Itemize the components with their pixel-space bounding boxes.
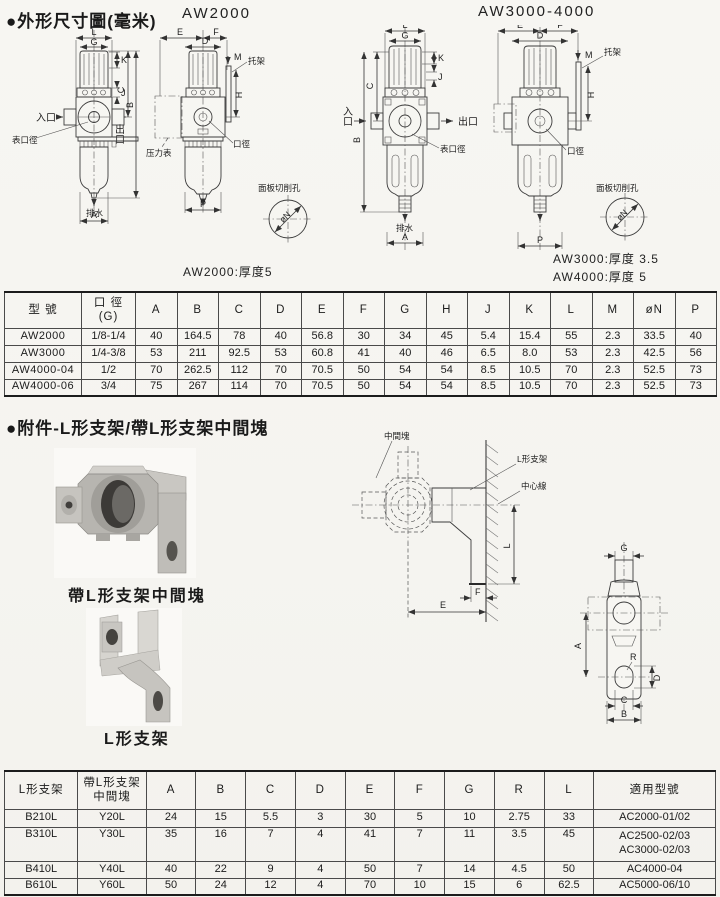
dim-L: L — [91, 27, 96, 37]
cell: 54 — [426, 379, 468, 396]
cell: 30 — [343, 328, 385, 345]
port-label: 口徑 — [233, 139, 251, 149]
cell: 45 — [544, 827, 594, 861]
cell: 70.5 — [302, 379, 344, 396]
cell: Y30L — [78, 827, 146, 861]
cell: AC2000-01/02 — [594, 809, 716, 827]
intermediate-block-label: 中間塊 — [384, 431, 410, 441]
cell: 9 — [246, 861, 296, 878]
cell: 16 — [196, 827, 246, 861]
cell: 40 — [675, 328, 717, 345]
dimension-table: 型 號 口 徑(G) A B C D E F G H J K L M øN P — [4, 291, 717, 397]
gauge-port-label: 表口徑 — [12, 135, 38, 145]
phi-n-label: øN — [614, 207, 629, 222]
cell: 75 — [136, 379, 178, 396]
cell: B310L — [5, 827, 78, 861]
cell: AW4000-06 — [5, 379, 82, 396]
dim-L: L — [402, 25, 407, 30]
cell: 6 — [494, 878, 544, 895]
aw3000-side-view: E F D M 托架 H — [494, 25, 622, 252]
cell: 92.5 — [219, 345, 261, 362]
t1-h-C: C — [219, 292, 261, 328]
aw3000-front-view: L G K J — [341, 25, 479, 250]
t1-h-E: E — [302, 292, 344, 328]
dim-E: E — [517, 25, 523, 30]
t2-h-C: C — [246, 771, 296, 809]
aw2000-title: AW2000 — [182, 5, 251, 22]
dim-F: F — [213, 27, 219, 37]
cell: 40 — [146, 861, 196, 878]
cell: 2.3 — [592, 379, 634, 396]
cell: 70.5 — [302, 362, 344, 379]
cell: 1/2 — [82, 362, 136, 379]
t2-h-R: R — [494, 771, 544, 809]
photo-caption-bracket-with-block: 帶L形支架中間塊 — [68, 582, 206, 606]
dim-K: K — [121, 55, 127, 65]
cell: 33 — [544, 809, 594, 827]
inlet-label: 入口 — [341, 106, 353, 126]
cell: Y40L — [78, 861, 146, 878]
cell: 45 — [426, 328, 468, 345]
dim-M: M — [585, 50, 593, 60]
cell: AW2000 — [5, 328, 82, 345]
cell: B410L — [5, 861, 78, 878]
dim-F: F — [557, 25, 563, 30]
dim-H: H — [234, 92, 244, 99]
dim-A: A — [91, 210, 97, 220]
pressure-gauge-label: 压力表 — [146, 148, 172, 158]
gauge-port-label: 表口徑 — [440, 144, 466, 154]
t1-h-M: M — [592, 292, 634, 328]
cell: 54 — [385, 362, 427, 379]
dim-C: C — [365, 82, 375, 89]
cell: 30 — [345, 809, 395, 827]
cell: 73 — [675, 362, 717, 379]
table-row: AW4000-04 1/2 70 262.5 112 70 70.5 50 54… — [5, 362, 717, 379]
aw2000-thickness-note: AW2000:厚度5 — [183, 263, 273, 280]
cell: 4 — [295, 861, 345, 878]
t2-h-F: F — [395, 771, 445, 809]
cell: 50 — [345, 861, 395, 878]
panel-cutout-label: 面板切削孔 — [258, 183, 301, 193]
cell: 7 — [395, 861, 445, 878]
cell: 10.5 — [509, 362, 551, 379]
cell: 54 — [385, 379, 427, 396]
t1-h-J: J — [468, 292, 510, 328]
aw3000-4000-title: AW3000-4000 — [478, 3, 595, 20]
cell: 50 — [544, 861, 594, 878]
table-header-row: 型 號 口 徑(G) A B C D E F G H J K L M øN P — [5, 292, 717, 328]
cell: 41 — [343, 345, 385, 362]
panel-cutout-aw3000: 面板切削孔 øN — [596, 183, 650, 241]
cell: 211 — [177, 345, 219, 362]
dim-P: P — [200, 199, 206, 209]
dim-E: E — [440, 600, 446, 610]
cell: 267 — [177, 379, 219, 396]
dim-J: J — [438, 72, 443, 82]
cell: 8.0 — [509, 345, 551, 362]
cell: 2.3 — [592, 345, 634, 362]
cell: 73 — [675, 379, 717, 396]
cell: 262.5 — [177, 362, 219, 379]
cell: 70 — [260, 362, 302, 379]
cell: B210L — [5, 809, 78, 827]
t1-h-A: A — [136, 292, 178, 328]
cell: 40 — [136, 328, 178, 345]
table-row: B310L Y30L 35 16 7 4 41 7 11 3.5 45 AC25… — [5, 827, 716, 861]
t2-h-models: 適用型號 — [594, 771, 716, 809]
cell: 7 — [395, 827, 445, 861]
bracket-installation-drawing: 中間塊 — [352, 431, 548, 622]
t1-h-L: L — [551, 292, 593, 328]
cell: 34 — [385, 328, 427, 345]
cell: 24 — [196, 878, 246, 895]
dim-F: F — [475, 587, 481, 597]
table-row: AW4000-06 3/4 75 267 114 70 70.5 50 54 5… — [5, 379, 717, 396]
cell: 15 — [196, 809, 246, 827]
t2-h-B: B — [196, 771, 246, 809]
dim-L: L — [502, 543, 512, 548]
t1-h-B: B — [177, 292, 219, 328]
dim-D: D — [202, 36, 209, 46]
cell: 10 — [445, 809, 495, 827]
dim-G: G — [620, 543, 627, 553]
dim-R: R — [630, 652, 637, 662]
dim-C: C — [116, 86, 126, 93]
cell: Y60L — [78, 878, 146, 895]
cell: 54 — [426, 362, 468, 379]
t1-h-D: D — [260, 292, 302, 328]
outlet-label: 出口 — [458, 115, 478, 128]
t1-h-G: G — [385, 292, 427, 328]
dim-B: B — [352, 137, 362, 143]
cell: AC5000-06/10 — [594, 878, 716, 895]
photo-l-bracket — [86, 608, 182, 726]
cell: 12 — [246, 878, 296, 895]
cell: 70 — [136, 362, 178, 379]
table-row: AW2000 1/8-1/4 40 164.5 78 40 56.8 30 34… — [5, 328, 717, 345]
cell: 70 — [551, 379, 593, 396]
t1-h-F: F — [343, 292, 385, 328]
cell: 11 — [445, 827, 495, 861]
cell: 42.5 — [634, 345, 676, 362]
panel-cutout-aw2000: 面板切削孔 øN — [258, 183, 313, 243]
t2-h-L: L — [544, 771, 594, 809]
center-line-label: 中心線 — [521, 481, 547, 491]
bracket-table: L形支架 帶L形支架中間塊 A B C D E F G R L 適用型號 B21… — [4, 770, 716, 896]
cell: 40 — [260, 328, 302, 345]
cell: 5 — [395, 809, 445, 827]
cell: 6.5 — [468, 345, 510, 362]
cell: 4.5 — [494, 861, 544, 878]
t1-h-N: øN — [634, 292, 676, 328]
cell: 3/4 — [82, 379, 136, 396]
cell: 55 — [551, 328, 593, 345]
t1-h-model: 型 號 — [5, 292, 82, 328]
cell: 3 — [295, 809, 345, 827]
dim-A: A — [402, 232, 408, 242]
t2-h-block: 帶L形支架中間塊 — [78, 771, 146, 809]
t2-h-G: G — [445, 771, 495, 809]
cell: 8.5 — [468, 379, 510, 396]
t1-h-P: P — [675, 292, 717, 328]
port-label: 口徑 — [567, 146, 585, 156]
aw3000-thickness-note: AW3000:厚度 3.5 — [553, 250, 659, 267]
cell: 8.5 — [468, 362, 510, 379]
cell: 2.3 — [592, 362, 634, 379]
aw4000-thickness-note: AW4000:厚度 5 — [553, 268, 647, 285]
cell: 70 — [551, 362, 593, 379]
cell: 33.5 — [634, 328, 676, 345]
cell: 3.5 — [494, 827, 544, 861]
dim-M: M — [234, 52, 242, 62]
aw2000-side-view: E F D M 托架 H — [146, 27, 266, 214]
table-header-row: L形支架 帶L形支架中間塊 A B C D E F G R L 適用型號 — [5, 771, 716, 809]
cell: AC2500-02/03AC3000-02/03 — [594, 827, 716, 861]
dim-K: K — [438, 53, 444, 63]
cell: 70 — [345, 878, 395, 895]
t2-h-E: E — [345, 771, 395, 809]
cell: 14 — [445, 861, 495, 878]
cell: AW4000-04 — [5, 362, 82, 379]
bracket-label: 托架 — [248, 56, 266, 66]
phi-n-label: øN — [277, 209, 292, 224]
cell: AC4000-04 — [594, 861, 716, 878]
cell: 164.5 — [177, 328, 219, 345]
t1-h-K: K — [509, 292, 551, 328]
cell: 50 — [146, 878, 196, 895]
cell: 24 — [146, 809, 196, 827]
cell: 78 — [219, 328, 261, 345]
cell: 114 — [219, 379, 261, 396]
cell: 1/8-1/4 — [82, 328, 136, 345]
dim-A: A — [573, 643, 583, 649]
cell: 15.4 — [509, 328, 551, 345]
catalog-page: ●外形尺寸圖(毫米) AW2000 AW3000-4000 L G — [0, 0, 720, 897]
cell: AW3000 — [5, 345, 82, 362]
table-row: B210L Y20L 24 15 5.5 3 30 5 10 2.75 33 A… — [5, 809, 716, 827]
cell: 5.4 — [468, 328, 510, 345]
cell: 112 — [219, 362, 261, 379]
cell: 60.8 — [302, 345, 344, 362]
dim-G: G — [401, 31, 408, 41]
photo-bracket-with-block — [54, 448, 196, 578]
bracket-label: 托架 — [604, 47, 622, 57]
cell: B610L — [5, 878, 78, 895]
dim-G: G — [90, 37, 97, 47]
t2-h-bracket: L形支架 — [5, 771, 78, 809]
cell: 70 — [260, 379, 302, 396]
table-row: AW3000 1/4-3/8 53 211 92.5 53 60.8 41 40… — [5, 345, 717, 362]
t1-h-H: H — [426, 292, 468, 328]
cell: 50 — [343, 379, 385, 396]
table-row: B410L Y40L 40 22 9 4 50 7 14 4.5 50 AC40… — [5, 861, 716, 878]
cell: 7 — [246, 827, 296, 861]
cell: 15 — [445, 878, 495, 895]
aw2000-front-view: L G K J — [12, 27, 140, 224]
table-row: B610L Y60L 50 24 12 4 70 10 15 6 62.5 AC… — [5, 878, 716, 895]
t2-h-D: D — [295, 771, 345, 809]
cell: 50 — [343, 362, 385, 379]
dim-D: D — [537, 31, 544, 41]
cell: 41 — [345, 827, 395, 861]
dim-B: B — [125, 102, 135, 108]
cell: 4 — [295, 878, 345, 895]
t2-h-A: A — [146, 771, 196, 809]
cell: 35 — [146, 827, 196, 861]
cell: 46 — [426, 345, 468, 362]
cell: 5.5 — [246, 809, 296, 827]
cell: 2.3 — [592, 328, 634, 345]
l-bracket-label: L形支架 — [517, 454, 548, 464]
dim-B: B — [621, 709, 627, 719]
cell: 62.5 — [544, 878, 594, 895]
cell: 52.5 — [634, 362, 676, 379]
cell: Y20L — [78, 809, 146, 827]
cell: 56 — [675, 345, 717, 362]
photo-caption-l-bracket: L形支架 — [104, 725, 170, 749]
cell: 53 — [551, 345, 593, 362]
cell: 53 — [136, 345, 178, 362]
cell: 53 — [260, 345, 302, 362]
cell: 56.8 — [302, 328, 344, 345]
cell: 40 — [385, 345, 427, 362]
dim-H: H — [586, 92, 596, 99]
cell: 2.75 — [494, 809, 544, 827]
dim-P: P — [537, 235, 543, 245]
t1-h-port: 口 徑(G) — [82, 292, 136, 328]
cell: 10.5 — [509, 379, 551, 396]
inlet-label: 入口 — [36, 113, 56, 124]
panel-cutout-label: 面板切削孔 — [596, 183, 639, 193]
dim-D: D — [652, 674, 662, 681]
cell: 1/4-3/8 — [82, 345, 136, 362]
cell: 4 — [295, 827, 345, 861]
bracket-side-view-drawing: G A R D C — [573, 542, 668, 724]
dim-C: C — [621, 695, 628, 705]
cell: 52.5 — [634, 379, 676, 396]
cell: 22 — [196, 861, 246, 878]
cell: 10 — [395, 878, 445, 895]
dim-E: E — [177, 27, 183, 37]
